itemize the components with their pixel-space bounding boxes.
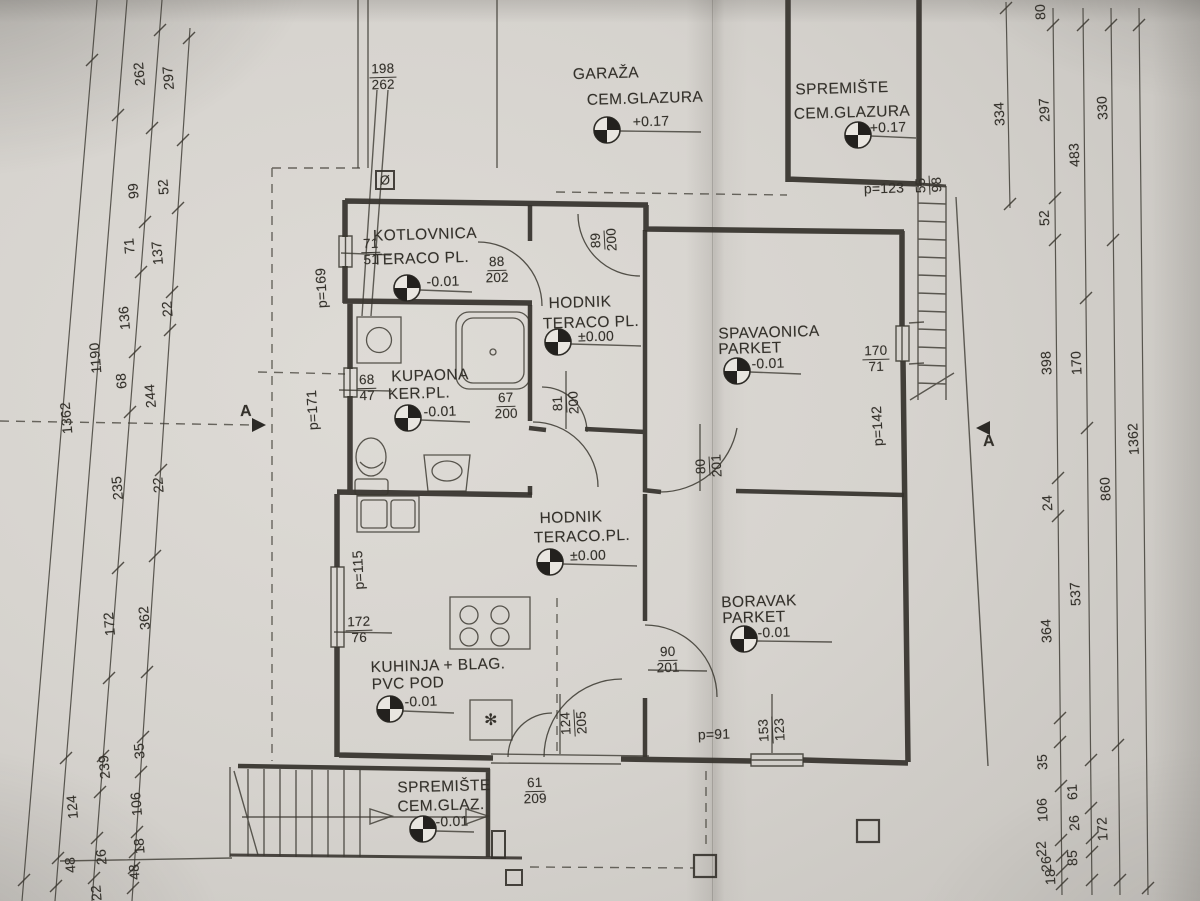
fraction-denominator: 200 <box>604 226 620 254</box>
fraction-numerator: 170 <box>862 344 890 360</box>
fraction-denominator: 200 <box>492 406 520 421</box>
fraction-denominator: 123 <box>772 716 788 744</box>
dim-label: 297 <box>160 65 176 90</box>
opening-size-label: 80201 <box>693 452 724 481</box>
dim-label: 1190 <box>87 342 104 374</box>
room-name: KUHINJA + BLAG. <box>370 656 505 675</box>
dim-label: 172 <box>1094 817 1109 842</box>
elevation-value: ±0.00 <box>578 329 614 344</box>
room-floor: KER.PL. <box>388 385 451 402</box>
opening-size-label: 17071 <box>862 344 890 375</box>
fraction-denominator: 209 <box>521 791 549 806</box>
elevation-value: -0.01 <box>426 274 459 289</box>
dim-label: 22 <box>1034 841 1049 858</box>
diameter-symbol-icon: Ø <box>380 173 391 186</box>
dim-label: 61 <box>1065 784 1080 801</box>
dim-label: 235 <box>109 475 125 500</box>
fraction-denominator: 47 <box>357 388 377 403</box>
dim-label: 297 <box>1036 98 1051 123</box>
dim-label: 239 <box>96 754 112 779</box>
dim-label: 85 <box>1065 850 1080 867</box>
parapet-label: p=115 <box>350 550 366 590</box>
section-marker-label: A <box>983 434 995 450</box>
room-name: SPREMIŠTE <box>795 80 889 98</box>
elevation-value: -0.01 <box>404 694 437 709</box>
fraction-denominator: 200 <box>566 389 582 417</box>
opening-size-label: 198262 <box>369 62 397 93</box>
dim-label: 22 <box>159 300 174 317</box>
dim-label: 35 <box>1035 754 1050 771</box>
room-name: HODNIK <box>539 509 602 526</box>
room-floor: CEM.GLAZ. <box>397 797 485 815</box>
room-name: HODNIK <box>548 294 611 311</box>
fraction-numerator: 68 <box>357 373 377 389</box>
opening-size-label: 81200 <box>550 389 581 418</box>
room-name: GARAŽA <box>573 65 640 82</box>
room-name: KOTLOVNICA <box>373 226 477 244</box>
opening-size-label: 61209 <box>521 776 549 807</box>
dim-label: 334 <box>991 102 1006 127</box>
elevation-value: -0.01 <box>435 814 468 829</box>
fraction-denominator: 205 <box>574 709 590 737</box>
parapet-label: p=169 <box>313 267 329 308</box>
elevation-value: +0.17 <box>870 119 907 134</box>
dim-label: 483 <box>1066 143 1081 168</box>
dim-label: 172 <box>101 611 117 636</box>
opening-size-label: 6847 <box>357 373 377 404</box>
fraction-numerator: 88 <box>487 255 507 271</box>
opening-size-label: 153123 <box>756 716 787 745</box>
dim-label: 170 <box>1068 351 1083 376</box>
dim-label: 106 <box>128 791 144 816</box>
dim-label: 262 <box>131 61 147 86</box>
elevation-value: -0.01 <box>751 356 784 371</box>
dimension-lines <box>22 0 1148 901</box>
dim-label: 68 <box>113 372 128 389</box>
dim-label: 18 <box>1043 869 1058 886</box>
parapet-label: p=171 <box>304 389 320 430</box>
dim-label: 364 <box>1038 619 1053 644</box>
stairs-upper <box>910 185 954 400</box>
dim-label: 136 <box>116 305 132 330</box>
section-arrow-left <box>252 418 266 432</box>
fraction-denominator: 76 <box>349 630 369 645</box>
dim-label: 1362 <box>58 401 75 434</box>
elevation-value: +0.17 <box>633 113 670 128</box>
opening-size-label: 5598 <box>914 175 945 196</box>
dim-label: 18 <box>131 837 146 854</box>
fraction-numerator: 89 <box>589 230 605 250</box>
section-marker-label: A <box>240 404 252 420</box>
parapet-label: p=91 <box>698 727 731 742</box>
dim-label: 80 <box>1033 4 1048 21</box>
fraction-numerator: 71 <box>361 237 381 253</box>
dim-label: 137 <box>149 240 165 265</box>
fraction-numerator: 198 <box>369 62 397 78</box>
dim-label: 48 <box>126 863 141 880</box>
fraction-denominator: 71 <box>866 359 886 374</box>
fraction-denominator: 262 <box>369 77 397 92</box>
fraction-numerator: 80 <box>694 456 710 476</box>
dim-label: 124 <box>64 794 80 819</box>
dim-label: 22 <box>88 884 103 901</box>
dim-label: 26 <box>93 848 108 865</box>
dim-label: 35 <box>131 742 146 759</box>
parapet-label: p=123 <box>864 180 905 195</box>
dim-label: 106 <box>1034 798 1049 823</box>
dim-label: 52 <box>1037 210 1052 227</box>
fraction-numerator: 67 <box>496 391 516 407</box>
fraction-denominator: 51 <box>361 252 381 267</box>
dim-label: 537 <box>1067 582 1082 607</box>
fraction-numerator: 172 <box>345 615 373 631</box>
fraction-denominator: 98 <box>929 175 944 195</box>
dim-label: 330 <box>1094 96 1109 121</box>
opening-size-label: 67200 <box>492 391 520 422</box>
room-floor: TERACO PL. <box>373 250 470 268</box>
dim-label: 24 <box>1040 495 1055 512</box>
elevation-value: -0.01 <box>757 625 790 640</box>
dim-label: 244 <box>142 383 158 408</box>
dim-label: 1362 <box>1125 423 1141 456</box>
dim-label: 71 <box>121 237 136 254</box>
opening-size-label: 89200 <box>588 226 619 255</box>
fraction-numerator: 61 <box>525 776 545 792</box>
opening-size-label: 124205 <box>558 709 589 738</box>
fraction-numerator: 81 <box>551 393 567 413</box>
room-floor: PVC POD <box>372 675 445 693</box>
dim-label: 99 <box>125 182 140 199</box>
floor-plan-drawing <box>0 0 1200 901</box>
dim-label: 52 <box>155 178 170 195</box>
room-floor: TERACO.PL. <box>534 528 631 546</box>
opening-size-label: 90201 <box>654 645 682 676</box>
parapet-label: p=142 <box>869 405 885 446</box>
room-name: KUPAONA <box>391 367 469 385</box>
dashed-lines <box>0 168 787 868</box>
fraction-denominator: 201 <box>709 452 725 480</box>
dim-label: 48 <box>62 856 77 873</box>
stairs-lower <box>230 767 360 857</box>
dim-label: 22 <box>150 476 165 493</box>
dim-label: 398 <box>1038 351 1053 376</box>
fraction-numerator: 90 <box>658 645 678 661</box>
dim-label: 26 <box>1067 815 1082 832</box>
room-floor: CEM.GLAZURA <box>587 90 704 109</box>
opening-size-label: 7151 <box>361 237 381 268</box>
dim-label: 362 <box>136 605 152 630</box>
elevation-value: -0.01 <box>423 404 456 419</box>
fraction-denominator: 201 <box>654 660 682 675</box>
floor-plan-photo: GARAŽA CEM.GLAZURA +0.17 SPREMIŠTE CEM.G… <box>0 0 1200 901</box>
fraction-numerator: 55 <box>914 175 930 195</box>
snowflake-icon: ✻ <box>484 713 498 729</box>
fraction-denominator: 202 <box>483 270 511 285</box>
dim-label: 860 <box>1097 477 1112 502</box>
elevation-value: ±0.00 <box>570 548 606 563</box>
opening-size-label: 88202 <box>483 255 511 286</box>
opening-size-label: 17276 <box>345 615 373 646</box>
room-name: SPREMIŠTE <box>397 778 491 796</box>
